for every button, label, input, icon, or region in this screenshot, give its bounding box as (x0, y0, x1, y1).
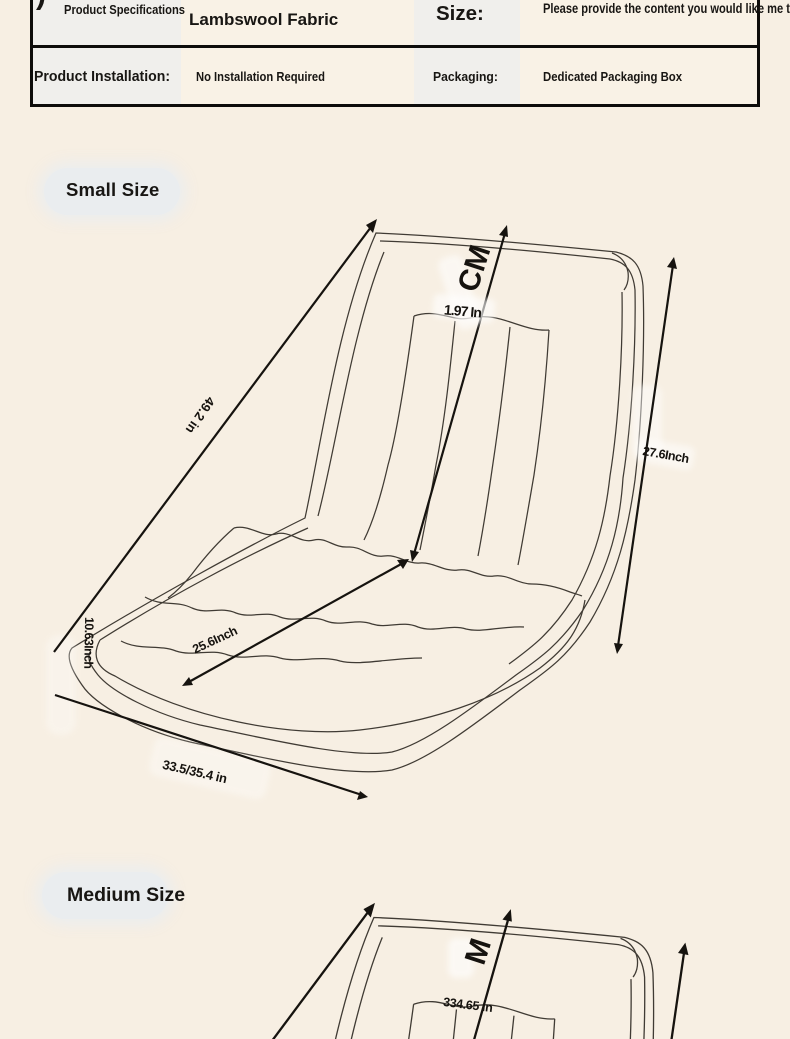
svg-text:10.63Inch: 10.63Inch (81, 617, 96, 669)
svg-text:1.97 In: 1.97 In (443, 301, 482, 320)
svg-text:25.6Inch: 25.6Inch (190, 624, 239, 657)
svg-text:49.2 in: 49.2 in (183, 394, 218, 436)
